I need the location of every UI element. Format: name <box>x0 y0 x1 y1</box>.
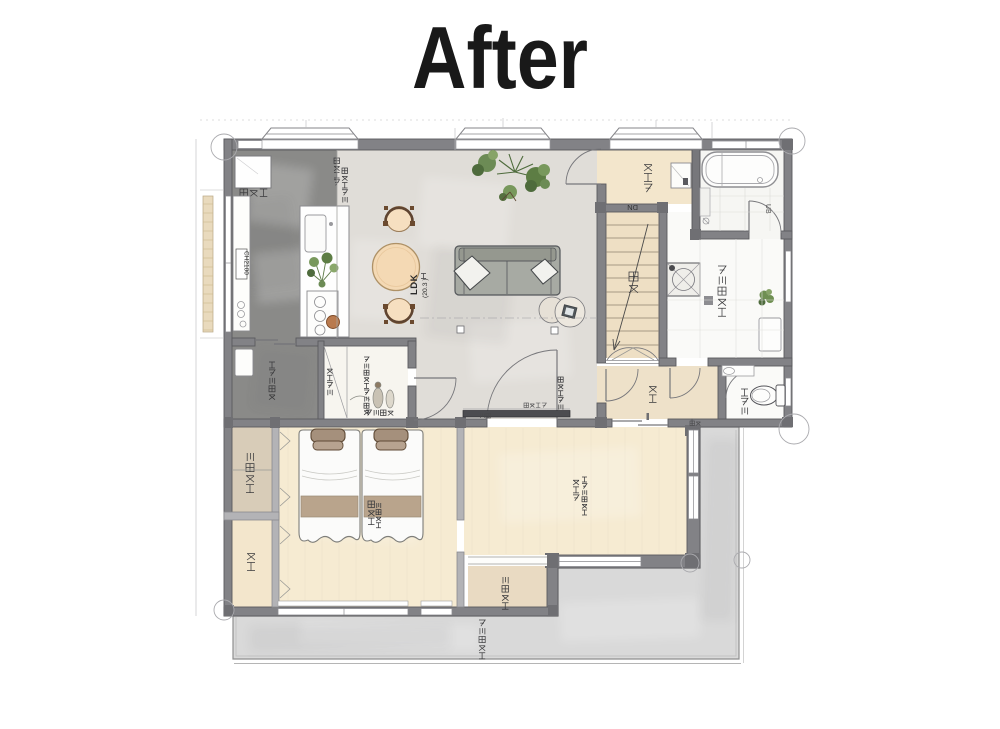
svg-text:LDK: LDK <box>409 274 420 295</box>
svg-text:UB: UB <box>764 204 771 214</box>
svg-text:CH2100: CH2100 <box>243 251 250 275</box>
svg-text:(20.3 ): (20.3 ) <box>422 278 429 298</box>
svg-text:DN: DN <box>627 203 638 212</box>
svg-text:After: After <box>412 8 588 107</box>
